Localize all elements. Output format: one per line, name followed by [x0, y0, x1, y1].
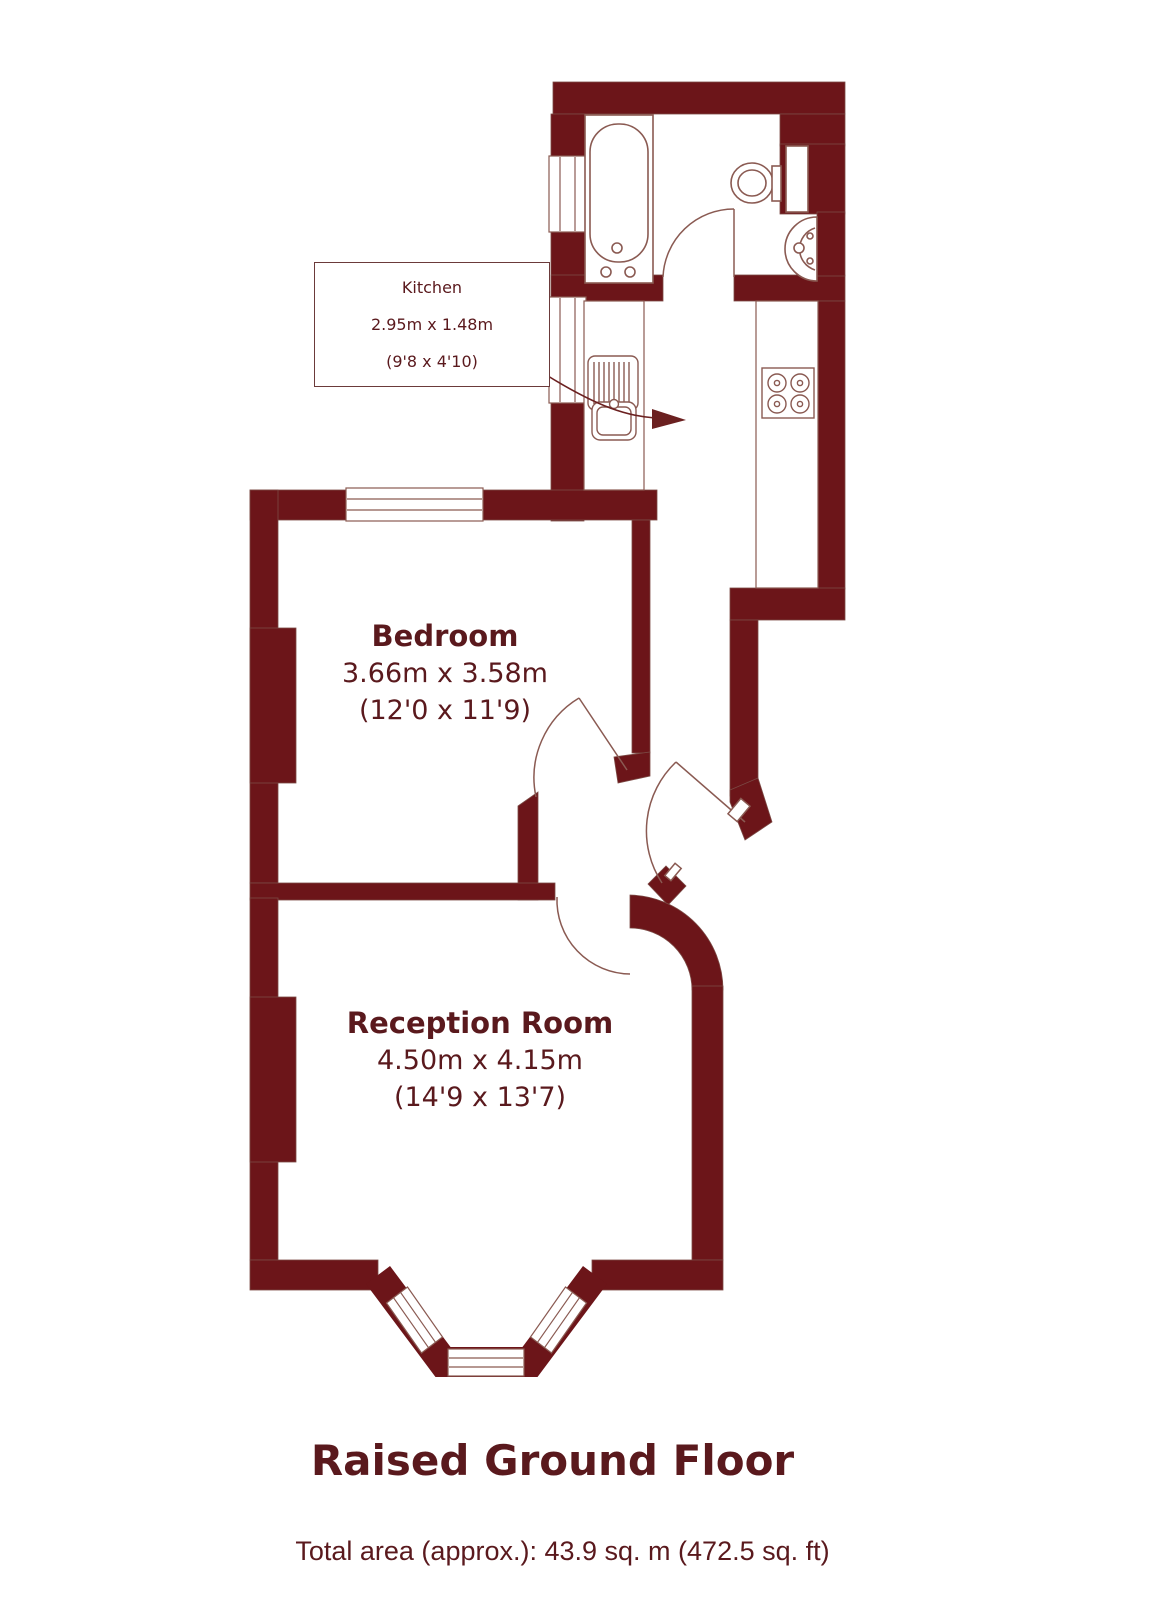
room-name: Kitchen — [315, 269, 549, 306]
wall — [817, 212, 845, 276]
floorplan-drawing — [0, 0, 1155, 1600]
wall — [483, 490, 657, 520]
kitchen-label: Kitchen 2.95m x 1.48m (9'8 x 4'10) — [314, 262, 550, 387]
chimney-breast — [250, 997, 296, 1162]
arrow-icon — [652, 409, 686, 429]
bedroom-window — [346, 488, 483, 521]
wall — [734, 275, 845, 301]
room-name: Reception Room — [325, 1005, 635, 1042]
wall — [730, 620, 758, 796]
wall — [632, 520, 650, 753]
wash-basin — [785, 217, 817, 281]
bathroom-window — [549, 156, 586, 232]
floorplan-page: Kitchen 2.95m x 1.48m (9'8 x 4'10) Bedro… — [0, 0, 1155, 1600]
reception-label: Reception Room 4.50m x 4.15m (14'9 x 13'… — [325, 1005, 635, 1116]
room-dims-metric: 4.50m x 4.15m — [325, 1042, 635, 1079]
wall — [250, 883, 555, 900]
bathtub — [585, 115, 653, 283]
wall-end — [614, 752, 650, 783]
wall — [730, 588, 845, 620]
room-dims-imperial: (9'8 x 4'10) — [315, 343, 549, 380]
bay-window-centre — [448, 1349, 524, 1376]
toilet — [731, 163, 781, 203]
room-dims-imperial: (14'9 x 13'7) — [325, 1079, 635, 1116]
room-dims-metric: 2.95m x 1.48m — [315, 306, 549, 343]
wall — [692, 986, 723, 1260]
curved-wall — [630, 895, 723, 990]
wall — [551, 114, 585, 158]
floor-title: Raised Ground Floor — [0, 1436, 1105, 1485]
wall — [250, 1260, 378, 1290]
total-area: Total area (approx.): 43.9 sq. m (472.5 … — [0, 1536, 1125, 1567]
counter-right — [756, 301, 818, 588]
wall — [780, 114, 845, 146]
wall — [553, 82, 845, 114]
bathroom-recess — [786, 146, 808, 212]
bedroom-label: Bedroom 3.66m x 3.58m (12'0 x 11'9) — [290, 618, 600, 729]
room-dims-metric: 3.66m x 3.58m — [290, 655, 600, 692]
room-name: Bedroom — [290, 618, 600, 655]
wall — [818, 301, 845, 589]
reception-door — [557, 897, 630, 974]
bathroom-door — [663, 209, 734, 277]
kitchen-sink — [588, 356, 638, 440]
wall — [592, 1260, 723, 1290]
kitchen-counters — [584, 301, 818, 588]
hob — [762, 368, 814, 418]
room-dims-imperial: (12'0 x 11'9) — [290, 692, 600, 729]
